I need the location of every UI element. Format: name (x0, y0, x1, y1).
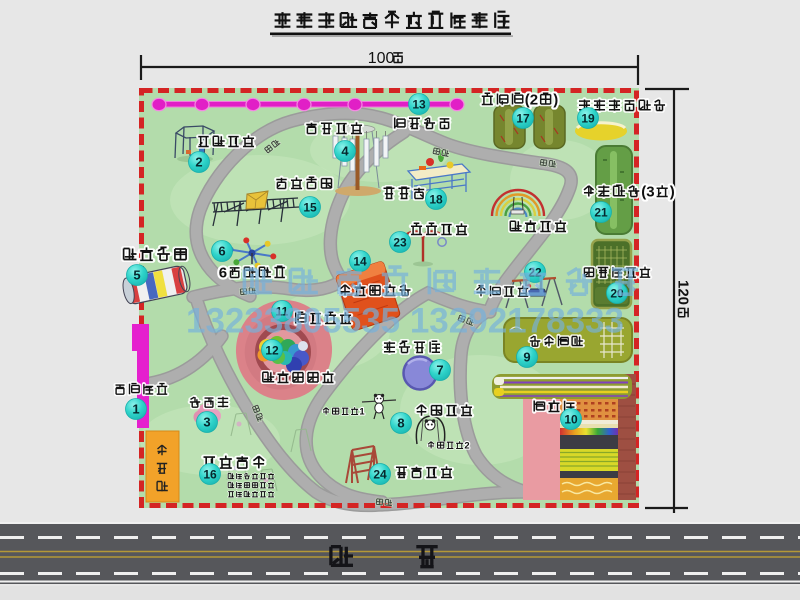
svg-text:10: 10 (564, 412, 578, 426)
svg-text:120: 120 (675, 280, 692, 305)
svg-text:1: 1 (132, 402, 139, 417)
svg-text:(3: (3 (641, 183, 654, 200)
svg-text:12: 12 (265, 343, 279, 357)
svg-text:16: 16 (203, 467, 217, 481)
svg-text:18: 18 (429, 192, 443, 206)
svg-text:6: 6 (218, 244, 225, 259)
svg-text:9: 9 (523, 350, 530, 365)
svg-text:4: 4 (341, 144, 349, 159)
svg-text:21: 21 (594, 205, 608, 219)
svg-text:15: 15 (303, 200, 317, 214)
svg-text:1: 1 (359, 406, 365, 417)
svg-text:100: 100 (368, 50, 395, 67)
svg-text:13233805535 13292178333: 13233805535 13292178333 (186, 302, 624, 341)
svg-text:): ) (553, 91, 558, 108)
svg-text:2: 2 (195, 155, 202, 170)
svg-text:23: 23 (393, 235, 407, 249)
svg-text:24: 24 (373, 467, 387, 481)
svg-text:19: 19 (581, 111, 595, 125)
svg-text:13: 13 (412, 97, 426, 111)
svg-text:2: 2 (464, 440, 469, 451)
svg-text:7: 7 (436, 363, 443, 378)
svg-text:3: 3 (203, 415, 210, 430)
svg-text:): ) (670, 183, 675, 200)
svg-text:17: 17 (516, 111, 530, 125)
svg-text:8: 8 (397, 416, 404, 431)
svg-text:(2: (2 (525, 91, 538, 108)
svg-text:14: 14 (353, 254, 367, 268)
svg-text:5: 5 (133, 268, 140, 283)
svg-text:6: 6 (219, 264, 227, 281)
